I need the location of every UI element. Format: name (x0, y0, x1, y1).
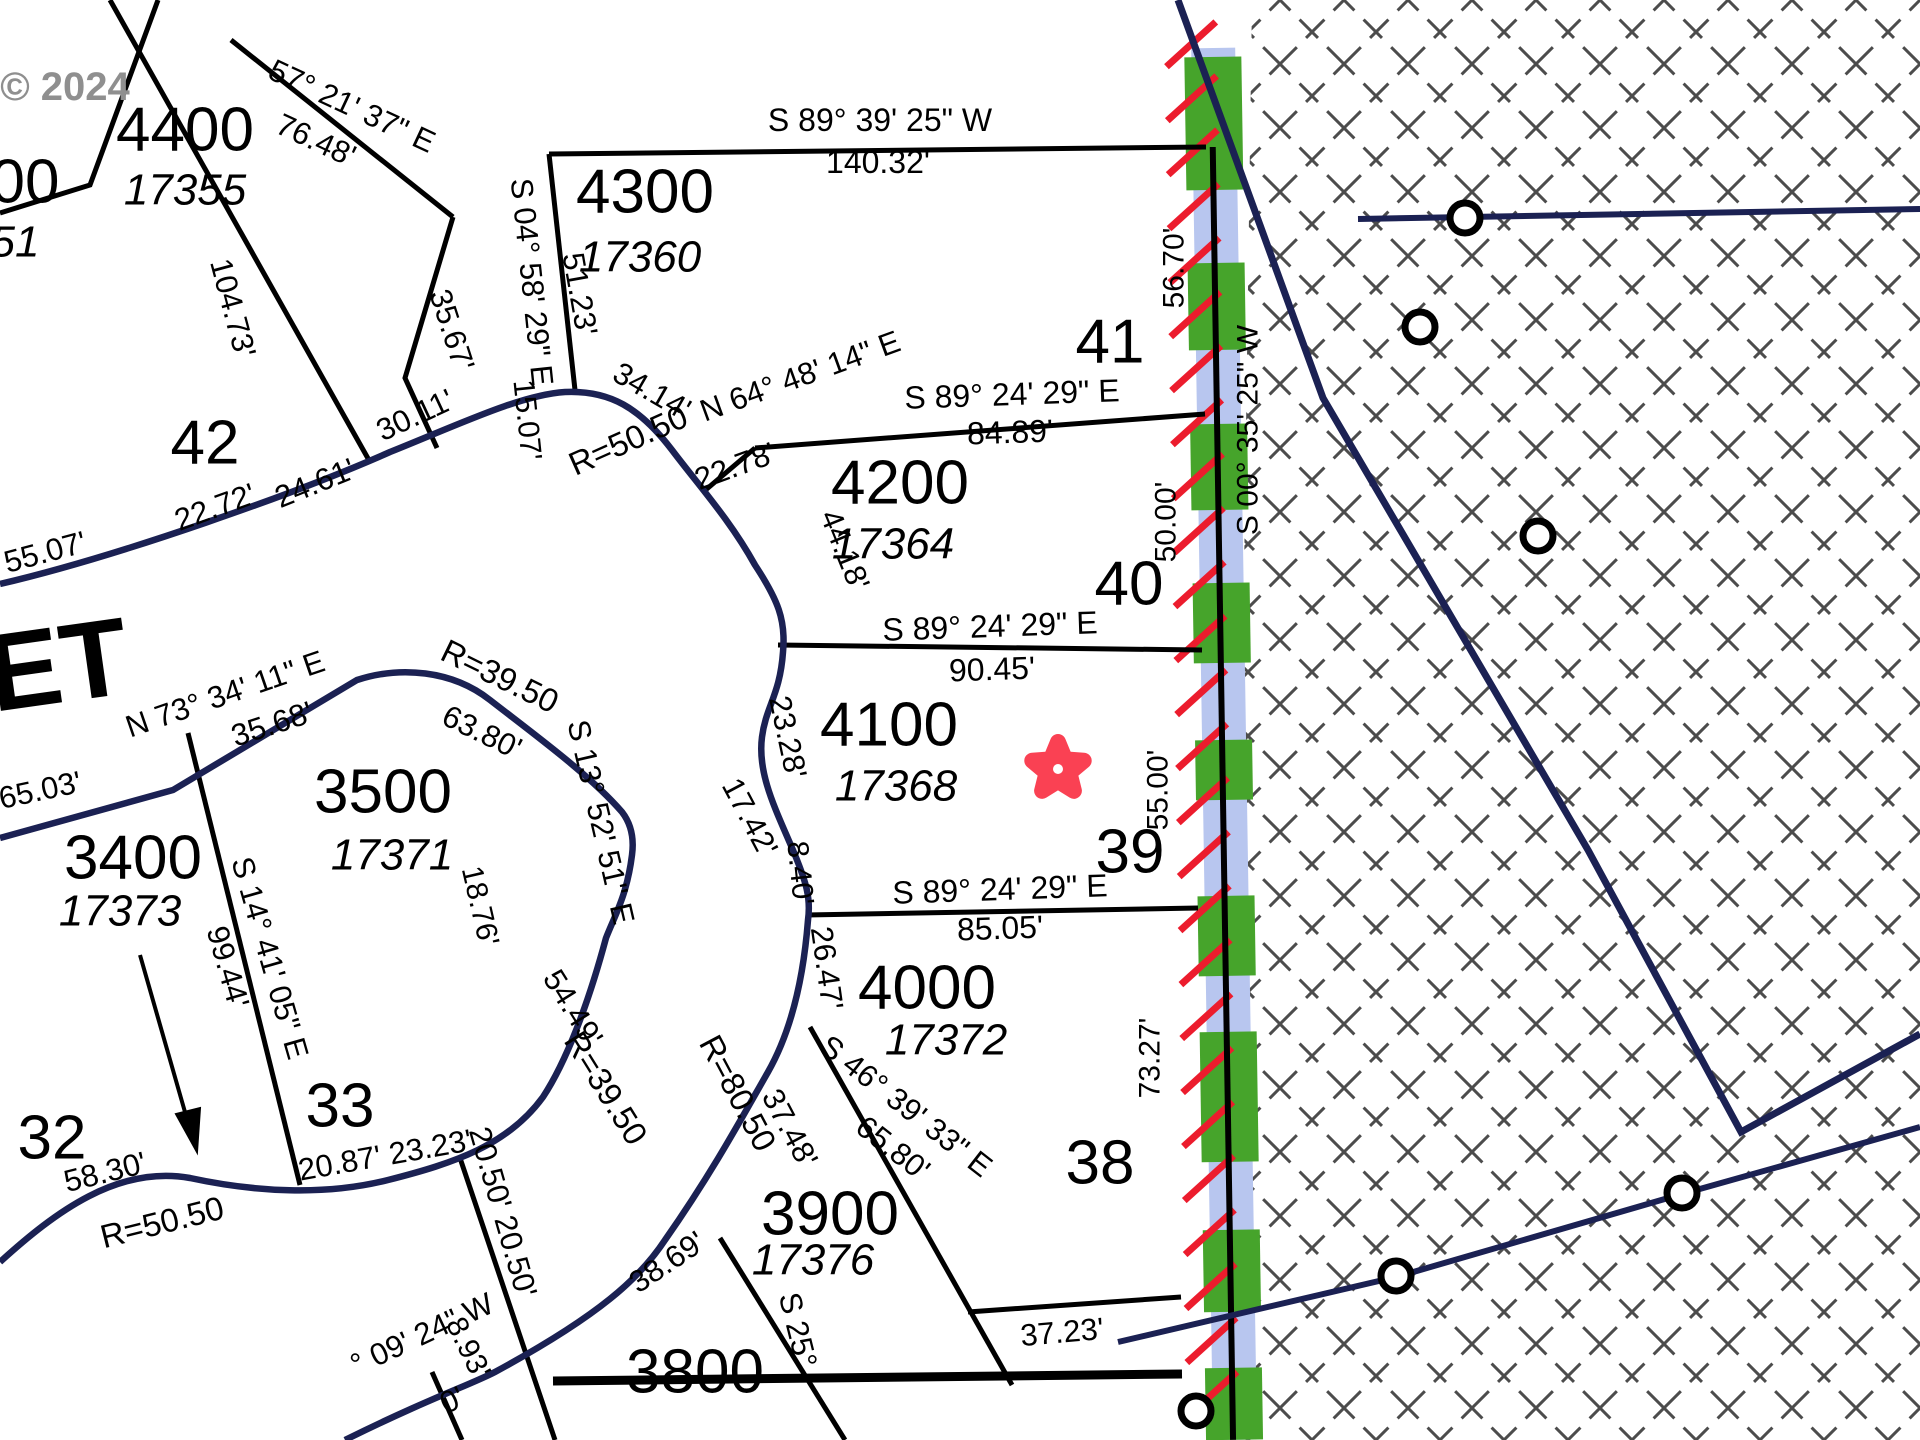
lot-42: 42 (171, 409, 240, 478)
star-center-dot (1053, 764, 1063, 774)
lot-3500: 3500 (314, 758, 452, 827)
dist-140-32: 140.32' (826, 144, 930, 180)
dist-84-89: 84.89' (966, 413, 1053, 452)
monument-circle-1 (1450, 203, 1480, 233)
dist-8-40: 8.40' (780, 839, 820, 906)
dist-56-70: 56.70' (1158, 228, 1191, 309)
bearing-s89-24-29-a: S 89° 24' 29" E (904, 372, 1120, 415)
dist-73-27: 73.27' (1134, 1018, 1167, 1099)
addr-17373: 17373 (59, 887, 182, 936)
dist-50-00: 50.00' (1150, 482, 1183, 563)
addr-51: 51 (0, 218, 39, 267)
monument-circle-6 (1181, 1396, 1211, 1426)
lot-00: 00 (0, 148, 59, 217)
addr-17360: 17360 (579, 233, 702, 282)
addr-17355: 17355 (124, 166, 247, 215)
monument-circle-3 (1523, 521, 1553, 551)
dist-85-05: 85.05' (956, 909, 1043, 948)
lot-4000: 4000 (858, 954, 996, 1023)
lot-3400: 3400 (64, 824, 202, 893)
plat-map: © 20240051440017355104.73'4257° 21' 37" … (0, 0, 1920, 1440)
lot-4100: 4100 (820, 691, 958, 760)
bearing-s89-24-29-c: S 89° 24' 29" E (892, 867, 1108, 910)
lot-4400: 4400 (116, 96, 254, 165)
monument-circle-5 (1667, 1178, 1697, 1208)
addr-17372: 17372 (885, 1016, 1007, 1065)
bearing-s89-39-25: S 89° 39' 25" W (768, 102, 993, 138)
addr-17368: 17368 (835, 762, 958, 811)
dist-90-45: 90.45' (948, 650, 1035, 689)
watermark-2024: © 2024 (0, 65, 130, 109)
monument-circle-2 (1405, 312, 1435, 342)
addr-17371: 17371 (331, 831, 453, 880)
lot-33: 33 (306, 1072, 375, 1141)
bearing-s89-24-29-b: S 89° 24' 29" E (882, 604, 1098, 647)
monument-circle-4 (1381, 1261, 1411, 1291)
lot-41: 41 (1076, 308, 1145, 377)
addr-17376: 17376 (752, 1236, 875, 1285)
plat-map-canvas: © 20240051440017355104.73'4257° 21' 37" … (0, 0, 1920, 1440)
lot-38: 38 (1066, 1129, 1135, 1198)
street-name-et: ET (0, 594, 136, 735)
dist-55-00: 55.00' (1142, 750, 1175, 831)
lot-3800: 3800 (626, 1338, 764, 1407)
dist-37-23: 37.23' (1019, 1311, 1105, 1353)
lot-4300: 4300 (576, 158, 714, 227)
lot-4200: 4200 (831, 449, 969, 518)
bearing-s00-35-25: S 00° 35' 25" W (1232, 324, 1265, 535)
